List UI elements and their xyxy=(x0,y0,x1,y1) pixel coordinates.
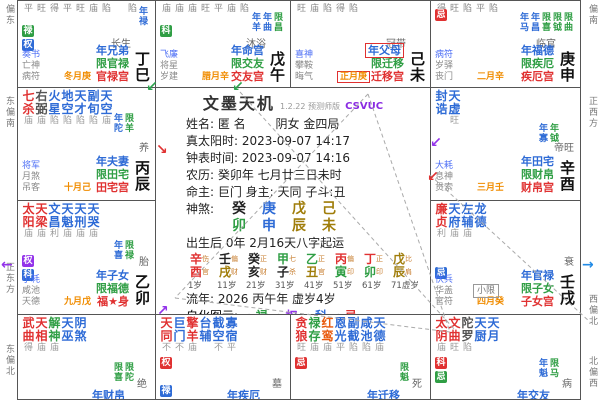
minor-star: 年魁 xyxy=(538,359,549,379)
cycle-star: 晦气 xyxy=(295,72,313,83)
palace-labels: 年父母限迁移迁移宫 xyxy=(365,44,404,83)
palace-labels: 年迁移 xyxy=(367,389,400,400)
annual-palace-label: 年夫妻 xyxy=(96,155,129,168)
cycle-star: 奏书 xyxy=(22,50,40,61)
bazi-stem: 癸 xyxy=(224,202,254,217)
bazi-branch: 申 xyxy=(254,219,284,234)
qiyun-line: 出生后 0年 2月16天八字起运 xyxy=(186,235,430,252)
badge-忌: 忌 xyxy=(435,371,447,383)
star: 火星陷 xyxy=(48,90,61,126)
gender-bureau: 阴女 金四局 xyxy=(276,117,340,131)
star: 封诰 xyxy=(435,90,448,126)
minor-star: 限马 xyxy=(549,359,560,379)
star: 阴煞 xyxy=(74,317,87,353)
flow-arrow-icon: ↙ xyxy=(232,80,244,94)
cycle-star: 吊客 xyxy=(22,183,40,194)
flow-month-label: 二月辛 xyxy=(477,69,504,82)
cycle-star: 小耗 xyxy=(22,275,40,286)
decade-pillar[interactable]: 辛伤酉官 xyxy=(190,253,219,279)
flow-month-label: 腊月辛 xyxy=(202,69,229,82)
decade-pillar[interactable]: 壬偏戌财 xyxy=(219,253,248,279)
minor-star: 年马 xyxy=(519,13,530,33)
flow-arrow-icon: ↘ xyxy=(156,143,168,157)
star: 擎羊庙 xyxy=(186,317,199,353)
cycle-stars: 飞廉将星岁建 xyxy=(160,50,178,83)
minor-stars: 年禄 xyxy=(138,7,149,27)
info-panel: 文墨天机 1.2.22 预测师版 CSVUC 姓名: 匿 名 阴女 金四局 真太… xyxy=(155,87,431,315)
natal-palace-label: 田宅宫 xyxy=(96,181,129,194)
life-stage-label: 绝 xyxy=(137,375,147,390)
transform-badges: 科 xyxy=(160,25,172,39)
minor-stars: 限魁 xyxy=(399,363,410,383)
ziwei-chart-screen: 偏东东偏南正东方东偏北 偏南正西方西偏北北偏西 平旺得平旺庙陷 陷禄权年禄长生丁… xyxy=(0,0,600,400)
annual-palace-label: 年福德 xyxy=(521,44,554,57)
star: 左辅庙 xyxy=(461,203,474,239)
palace-wu[interactable]: 庙庙庙旺平庙陷科年羊年曲限昌沐浴戊午年命宫限交友交友宫飞廉将星岁建腊月辛 xyxy=(155,0,291,88)
start-age: 21岁 xyxy=(246,279,275,291)
natal-palace-label: 迁移宫 xyxy=(365,70,404,83)
decade-palace-label: 限迁移 xyxy=(365,57,404,70)
life-stage-label: 养 xyxy=(139,139,149,154)
minor-stars: 年陀限羊 xyxy=(113,114,135,134)
star: 太阳庙 xyxy=(22,203,35,239)
flow-arrow-icon: ↙ xyxy=(427,170,439,184)
compass-left-0: 偏东 xyxy=(3,4,16,26)
minor-star: 年禄 xyxy=(138,7,149,27)
annual-palace-label: 年子女 xyxy=(96,269,129,282)
star: 天魁庙 xyxy=(61,203,74,239)
star: 文昌利 xyxy=(48,203,61,239)
compass-right-2: 西偏北 xyxy=(586,294,599,327)
star: 红鸾庙 xyxy=(321,317,334,353)
clock-time: 钟表时间: 2023-09-07 14:16 xyxy=(186,150,430,167)
self-transform-legend: 自化图示: → 禄 → 权 → 科 → 忌 xyxy=(186,308,430,315)
app-version: 1.2.22 预测师版 xyxy=(280,102,340,111)
star: 咸池陷 xyxy=(360,317,373,353)
star-list: 太阴庙文曲旺陀罗陷天厨天月 xyxy=(435,317,500,353)
badge-忌: 忌 xyxy=(295,357,307,369)
minor-star: 年羊 xyxy=(251,13,262,33)
palace-labels: 年田宅限财帛财帛宫 xyxy=(521,155,554,194)
title-row: 文墨天机 1.2.22 预测师版 CSVUC xyxy=(156,95,430,116)
palace-labels: 年福德限疾厄疾厄宫 xyxy=(521,44,554,83)
minor-stars: 年喜限禄 xyxy=(113,241,135,261)
stem-branch: 戊午 xyxy=(269,51,286,83)
star: 天府庙 xyxy=(448,203,461,239)
badge-科: 科 xyxy=(160,25,172,37)
star-list: 天同不巨门不擎羊庙台辅截空不寡宿平 xyxy=(160,317,238,353)
brightness-row: 庙庙庙旺平庙陷 xyxy=(162,1,253,14)
start-age: 1岁 xyxy=(188,279,217,291)
flow-month-label: 九月戊 xyxy=(64,294,91,307)
star: 天虚旺 xyxy=(448,90,461,126)
star: 右弼庙 xyxy=(35,90,48,126)
star: 天巫 xyxy=(61,317,74,353)
decade-palace-label: 限财帛 xyxy=(521,168,554,181)
star: 龙德 xyxy=(474,203,487,239)
star: 地空陷 xyxy=(61,90,74,126)
transform-badges: 忌 xyxy=(295,357,307,371)
palace-labels: 年官禄限子女子女宫 xyxy=(521,269,554,308)
cycle-star: 病符 xyxy=(435,50,453,61)
life-stage-label: 死 xyxy=(412,375,422,390)
flow-arrow-icon: ← xyxy=(1,258,13,272)
cycle-stars: 奏书亡神病符 xyxy=(22,50,40,83)
decade-palace-label: 限田宅 xyxy=(96,168,129,181)
compass-right-3: 北偏西 xyxy=(586,356,599,389)
decade-palace-label: 限官禄 xyxy=(96,57,129,70)
cycle-star: 伏兵 xyxy=(435,275,453,286)
brightness-row: 平旺得平旺庙陷 陷 xyxy=(24,1,141,14)
star: 寡宿平 xyxy=(225,317,238,353)
palace-si[interactable]: 平旺得平旺庙陷 陷禄权年禄长生丁巳年兄弟限官禄官禄宫奏书亡神病符冬月庚 xyxy=(17,0,156,88)
star: 台辅 xyxy=(199,317,212,353)
life-stage-label: 胎 xyxy=(139,253,149,268)
cycle-star: 月煞 xyxy=(22,172,40,183)
transform-badges: 忌 xyxy=(435,9,447,23)
stem-branch: 己未 xyxy=(409,51,426,83)
star: 副旬陷 xyxy=(87,90,100,126)
minor-stars: 年马年昌限喜限钺限曲 xyxy=(519,13,574,33)
star: 天空庙 xyxy=(100,90,113,126)
life-stage-label: 帝旺 xyxy=(554,139,574,154)
transform-badge-bottom: 禄 xyxy=(160,385,172,399)
cycle-star: 亡神 xyxy=(22,61,40,72)
palace-wei[interactable]: 旺庙陷得陷冠带己未年父母限迁移迁移宫喜神攀鞍晦气正月庚 xyxy=(290,0,431,88)
cycle-star: 喜神 xyxy=(295,50,313,61)
cycle-star: 华盖 xyxy=(435,286,453,297)
compass-right-0: 偏南 xyxy=(586,4,599,26)
bazi-stems-row: 神煞:癸庚戊己 xyxy=(186,201,430,218)
palace-you[interactable]: 封诰天虚旺年寡年钺帝旺辛酉年田宅限财帛财帛宫大耗息神贯索三月壬 xyxy=(430,87,581,201)
minor-star: 限钺 xyxy=(552,13,563,33)
star: 巨门不 xyxy=(173,317,186,353)
minor-limit-box: 小限 xyxy=(473,284,499,298)
star-list: 武曲得天相庙解神庙天巫阴煞 xyxy=(22,317,87,353)
decade-ages: 1岁11岁21岁31岁41岁51岁61岁71虚岁 xyxy=(188,279,430,291)
compass-left-3: 东偏北 xyxy=(3,344,16,377)
annual-palace-label: 年财帛 xyxy=(92,389,125,400)
start-age: 31岁 xyxy=(275,279,304,291)
star: 廉贞利 xyxy=(435,203,448,239)
star: 文曲旺 xyxy=(448,317,461,353)
minor-star: 限喜 xyxy=(113,363,124,383)
annual-palace-label: 年交友 xyxy=(517,389,550,400)
annual-palace-label: 年兄弟 xyxy=(96,44,129,57)
bazi-stem: 己 xyxy=(314,202,344,217)
minor-star: 年曲 xyxy=(262,13,273,33)
bazi-branch: 辰 xyxy=(284,219,314,234)
natal-palace-label: 福★身 xyxy=(96,295,129,308)
star: 天梁庙 xyxy=(35,203,48,239)
minor-star: 限禄 xyxy=(124,241,135,261)
flow-arrow-icon: ↙ xyxy=(430,136,442,150)
cycle-star: 攀鞍 xyxy=(295,61,313,72)
transform-禄: 禄 xyxy=(256,309,268,315)
star: 太阴庙 xyxy=(435,317,448,353)
annual-palace-label: 年官禄 xyxy=(521,269,554,282)
star: 贪狼旺 xyxy=(295,317,308,353)
minor-stars: 限喜限陀 xyxy=(113,363,135,383)
minor-star: 限昌 xyxy=(273,13,284,33)
star: 天哭庙 xyxy=(87,203,100,239)
palace-labels: 年疾厄 xyxy=(227,389,260,400)
life-body-masters: 命主: 巨门 身主: 天同 子斗:丑 xyxy=(186,184,430,201)
transform-badges: 权 xyxy=(160,357,172,371)
start-age: 41岁 xyxy=(304,279,333,291)
flow-arrow-icon: ↗ xyxy=(157,304,169,318)
decade-pillar[interactable]: 乙正丑官 xyxy=(306,253,335,279)
palace-labels: 年子女限福德福★身 xyxy=(96,269,129,308)
decade-pillar[interactable]: 戊比辰肩 xyxy=(393,253,422,279)
decade-pillar[interactable]: 癸正亥财 xyxy=(248,253,277,279)
app-title: 文墨天机 xyxy=(203,94,275,113)
decade-palace-label: 限子女 xyxy=(521,282,554,295)
annual-year-line: 流年: 2026 丙午年 虚岁4岁 xyxy=(186,291,430,308)
life-stage-label: 墓 xyxy=(272,375,282,390)
bazi-branch: 未 xyxy=(314,219,344,234)
cycle-star: 官符 xyxy=(435,297,453,308)
start-age: 11岁 xyxy=(217,279,246,291)
minor-stars: 年羊年曲限昌 xyxy=(251,13,284,33)
cycle-star: 咸池 xyxy=(22,286,40,297)
annual-palace-label: 年命宫 xyxy=(231,44,264,57)
flow-arrow-icon: → xyxy=(582,258,594,272)
star-list: 七杀庙右弼庙火星陷地空陷天才陷副旬陷天空庙 xyxy=(22,90,113,126)
palace-yin[interactable]: 武曲得天相庙解神庙天巫阴煞限喜限陀绝年财帛 xyxy=(17,314,156,400)
bazi-stem: 庚 xyxy=(254,202,284,217)
stem-branch: 庚申 xyxy=(559,51,576,83)
compass-left-1: 东偏南 xyxy=(3,96,16,129)
brightness-row: 旺庙陷得陷 xyxy=(297,1,362,14)
life-stage-label: 病 xyxy=(562,375,572,390)
star: 陀罗陷 xyxy=(461,317,474,353)
badge-禄: 禄 xyxy=(22,25,34,37)
natal-palace-label: 疾厄宫 xyxy=(521,70,554,83)
cycle-stars: 将军月煞吊客 xyxy=(22,161,40,194)
decade-palace-label: 限福德 xyxy=(96,282,129,295)
flow-month-label: 冬月庚 xyxy=(64,69,91,82)
self-transform-label: 自化图示: xyxy=(186,309,238,315)
star: 天德庙 xyxy=(373,317,386,353)
minor-star: 年昌 xyxy=(530,13,541,33)
transform-科: 科 xyxy=(315,309,327,315)
transform-badges: 禄权 xyxy=(22,25,34,53)
cycle-stars: 喜神攀鞍晦气 xyxy=(295,50,313,83)
minor-stars: 年魁限马 xyxy=(538,359,560,379)
decade-pillar[interactable]: 甲七子杀 xyxy=(277,253,306,279)
minor-star: 限羊 xyxy=(124,114,135,134)
minor-star: 年寡 xyxy=(538,124,549,144)
start-age: 71虚岁 xyxy=(391,279,420,291)
annual-palace-label: 年迁移 xyxy=(367,389,400,400)
palace-zi[interactable]: 贪狼旺禄存庙红鸾庙恩光平副截陷咸池陷天德庙忌限魁死年迁移 xyxy=(290,314,431,400)
badge-禄: 禄 xyxy=(160,385,172,397)
star: 解神庙 xyxy=(48,317,61,353)
start-age: 51岁 xyxy=(333,279,362,291)
stem-branch: 壬戌 xyxy=(559,274,576,306)
annual-palace-label: 年父母 xyxy=(365,44,404,57)
transform-badges: 科忌 xyxy=(435,357,447,385)
palace-labels: 年夫妻限田宅田宅宫 xyxy=(96,155,129,194)
star: 天月 xyxy=(487,317,500,353)
cycle-star: 丧门 xyxy=(435,72,453,83)
edition-code: CSVUC xyxy=(345,101,383,112)
decade-pillars[interactable]: 辛伤酉官壬偏戌财癸正亥财甲七子杀乙正丑官丙偏寅印丁正卯印戊比辰肩 xyxy=(190,253,430,279)
decade-pillar[interactable]: 丙偏寅印 xyxy=(335,253,364,279)
decade-pillar[interactable]: 丁正卯印 xyxy=(364,253,393,279)
cycle-star: 岁驿 xyxy=(435,61,453,72)
star: 七杀庙 xyxy=(22,90,35,126)
natal-palace-label: 官禄宫 xyxy=(96,70,129,83)
palace-hai[interactable]: 太阴庙文曲旺陀罗陷天厨天月科忌年魁限马病年交友 xyxy=(430,314,581,400)
palace-shen[interactable]: 得旺陷平陷忌年马年昌限喜限钺限曲临官庚申年福德限疾厄疾厄宫病符岁驿丧门二月辛 xyxy=(430,0,581,88)
palace-chou[interactable]: 天同不巨门不擎羊庙台辅截空不寡宿平权禄墓年疾厄 xyxy=(155,314,291,400)
bazi-label: 神煞: xyxy=(186,201,224,218)
minor-star: 限魁 xyxy=(399,363,410,383)
annual-palace-label: 年田宅 xyxy=(521,155,554,168)
palace-chen[interactable]: 七杀庙右弼庙火星陷地空陷天才陷副旬陷天空庙年陀限羊养丙辰年夫妻限田宅田宅宫将军月… xyxy=(17,87,156,201)
palace-labels: 年兄弟限官禄官禄宫 xyxy=(96,44,129,83)
stem-branch: 乙卯 xyxy=(134,274,151,306)
star: 天同不 xyxy=(160,317,173,353)
stem-branch: 丙辰 xyxy=(134,160,151,192)
flow-arrow-icon: ↙ xyxy=(146,80,158,94)
star-list: 廉贞利天府庙左辅庙龙德 xyxy=(435,203,487,239)
start-age: 61岁 xyxy=(362,279,391,291)
cycle-star: 病符 xyxy=(22,72,40,83)
cycle-star: 飞廉 xyxy=(160,50,178,61)
badge-权: 权 xyxy=(22,255,34,267)
cycle-star: 岁建 xyxy=(160,72,178,83)
transform-忌: 忌 xyxy=(345,309,357,315)
name-value: 姓名: 匿 名 xyxy=(186,117,246,131)
star-list: 太阳庙天梁庙文昌利天魁庙天刑庙天哭庙 xyxy=(22,203,100,239)
bazi-branch: 卯 xyxy=(224,219,254,234)
star: 截空不 xyxy=(212,317,225,353)
star: 天刑庙 xyxy=(74,203,87,239)
star: 天相庙 xyxy=(35,317,48,353)
palace-labels: 年交友 xyxy=(517,389,550,400)
cycle-star: 将星 xyxy=(160,61,178,72)
life-stage-label: 衰 xyxy=(564,253,574,268)
lunar-date: 农历: 癸卯年 七月廿三日未时 xyxy=(186,167,430,184)
minor-star: 限喜 xyxy=(541,13,552,33)
star: 禄存庙 xyxy=(308,317,321,353)
name-line: 姓名: 匿 名 阴女 金四局 xyxy=(186,116,430,133)
minor-star: 限曲 xyxy=(563,13,574,33)
palace-labels: 年财帛 xyxy=(92,389,125,400)
star: 天厨 xyxy=(474,317,487,353)
minor-star: 年陀 xyxy=(113,114,124,134)
natal-palace-label: 财帛宫 xyxy=(521,181,554,194)
star: 恩光平 xyxy=(334,317,347,353)
cycle-stars: 小耗咸池天德 xyxy=(22,275,40,308)
transform-权: 权 xyxy=(285,309,297,315)
cycle-star: 天德 xyxy=(22,297,40,308)
badge-科: 科 xyxy=(435,357,447,369)
palace-labels: 年命宫限交友交友宫 xyxy=(231,44,264,83)
annual-palace-label: 年疾厄 xyxy=(227,389,260,400)
cycle-star: 将军 xyxy=(22,161,40,172)
decade-palace-label: 限疾厄 xyxy=(521,57,554,70)
palace-mao[interactable]: 太阳庙天梁庙文昌利天魁庙天刑庙天哭庙权科年喜限禄胎乙卯年子女限福德福★身小耗咸池… xyxy=(17,200,156,315)
true-solar-time: 真太阳时: 2023-09-07 14:17 xyxy=(186,133,430,150)
star-list: 封诰天虚旺 xyxy=(435,90,461,126)
star: 天才陷 xyxy=(74,90,87,126)
compass-right-1: 正西方 xyxy=(586,96,599,129)
stem-branch: 辛酉 xyxy=(559,160,576,192)
minor-star: 限陀 xyxy=(124,363,135,383)
star-list: 贪狼旺禄存庙红鸾庙恩光平副截陷咸池陷天德庙 xyxy=(295,317,386,353)
cycle-stars: 伏兵华盖官符 xyxy=(435,275,453,308)
flow-month-label: 十月己 xyxy=(64,180,91,193)
flow-month-label: 三月壬 xyxy=(477,180,504,193)
natal-palace-label: 子女宫 xyxy=(521,295,554,308)
flow-month-label: 正月庚 xyxy=(337,69,370,82)
star: 武曲得 xyxy=(22,317,35,353)
minor-star: 年喜 xyxy=(113,241,124,261)
cycle-stars: 病符岁驿丧门 xyxy=(435,50,453,83)
badge-权: 权 xyxy=(160,357,172,369)
palace-xu[interactable]: 廉贞利天府庙左辅庙龙德忌衰壬戌年官禄限子女子女宫伏兵华盖官符四月癸小限 xyxy=(430,200,581,315)
decade-palace-label: 限交友 xyxy=(231,57,264,70)
star: 副截陷 xyxy=(347,317,360,353)
badge-忌: 忌 xyxy=(435,9,447,21)
bazi-stem: 戊 xyxy=(284,202,314,217)
bazi-branches-row: 卯申辰未 xyxy=(186,218,430,235)
